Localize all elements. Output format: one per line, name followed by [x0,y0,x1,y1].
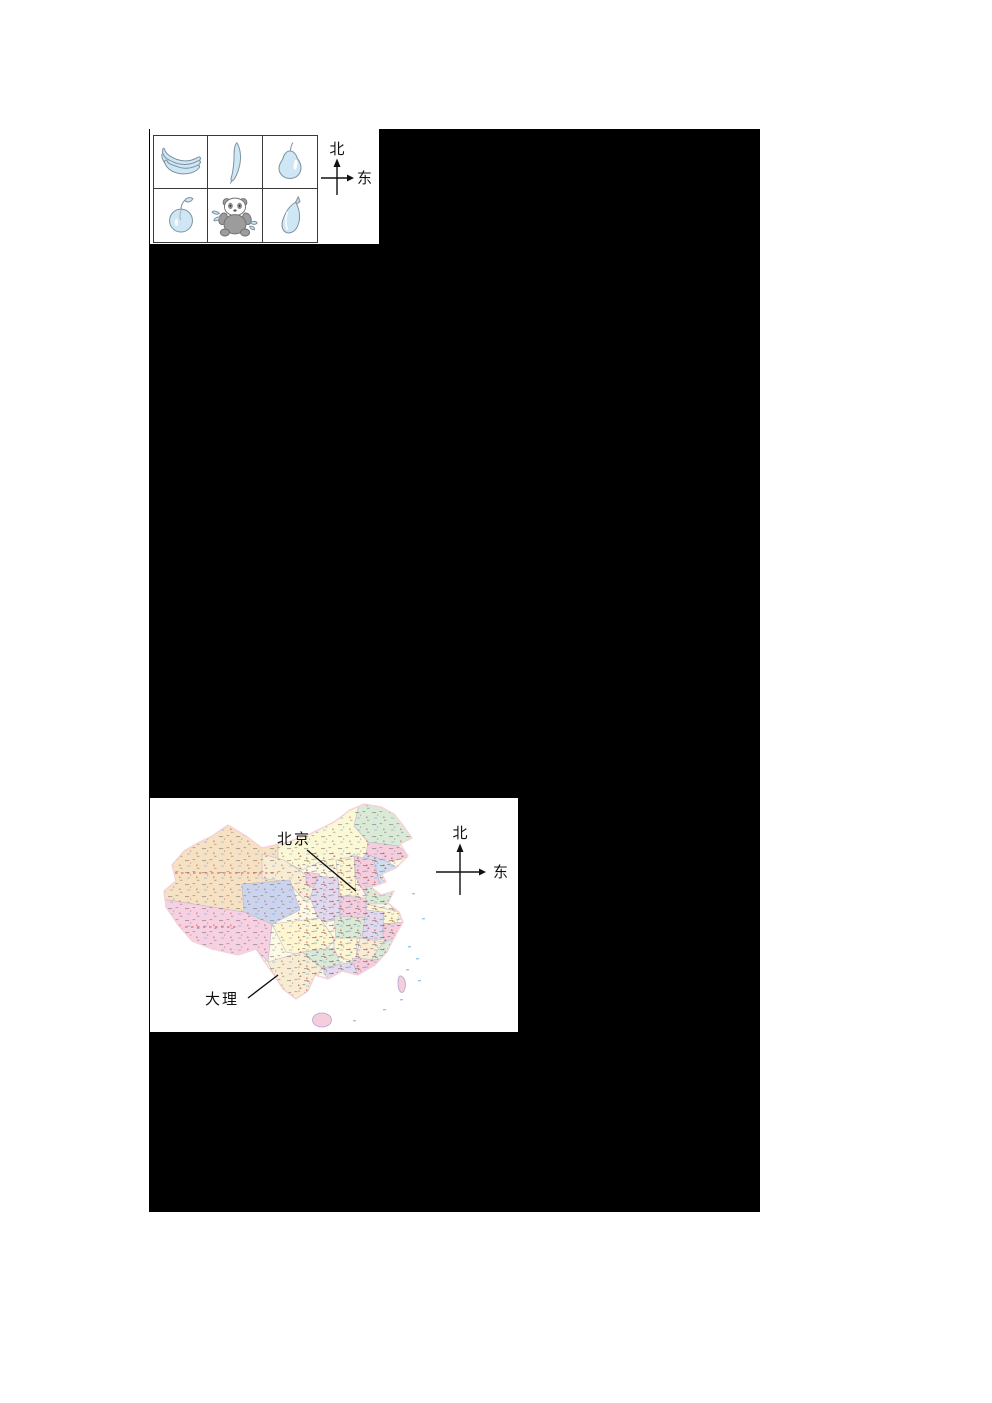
east-arrowhead-icon [347,175,354,182]
beijing-label: 北京 [277,832,311,847]
map-text-speckle-dense [298,853,428,1018]
grid-cell [208,189,262,242]
pear-icon [266,140,314,184]
grid-cell [154,189,208,242]
dali-label: 大理 [205,992,239,1007]
china-map-figure: 北 东 北京 大理 [150,798,518,1032]
map-region-hainan [313,1013,332,1027]
bananas-icon [157,140,205,184]
compass-east-label: 东 [357,169,372,187]
fruit-grid-figure: 北 东 [150,129,379,244]
position-grid [153,135,318,243]
peach-icon [157,194,205,238]
north-arrowhead-icon [334,159,341,168]
dali-leader-line [248,975,278,998]
grid-cell [208,136,262,189]
cucumber-icon [211,140,259,184]
north-arrowhead-icon [457,844,464,853]
compass-north-label: 北 [452,824,467,842]
grid-cell [154,136,208,189]
compass-east-label: 东 [493,863,508,881]
panda-icon [211,194,259,238]
east-arrowhead-icon [479,869,486,876]
compass-north-label: 北 [329,140,344,158]
map-region-taiwan [398,976,405,993]
grid-cell [263,136,317,189]
grid-cell [263,189,317,242]
eggplant-icon [266,194,314,238]
map-compass: 北 东 [436,824,508,895]
worksheet-page: { "theme": { "page_bg": "#ffffff", "reda… [0,0,992,1403]
redacted-content-block: 北 东 [149,129,760,1212]
